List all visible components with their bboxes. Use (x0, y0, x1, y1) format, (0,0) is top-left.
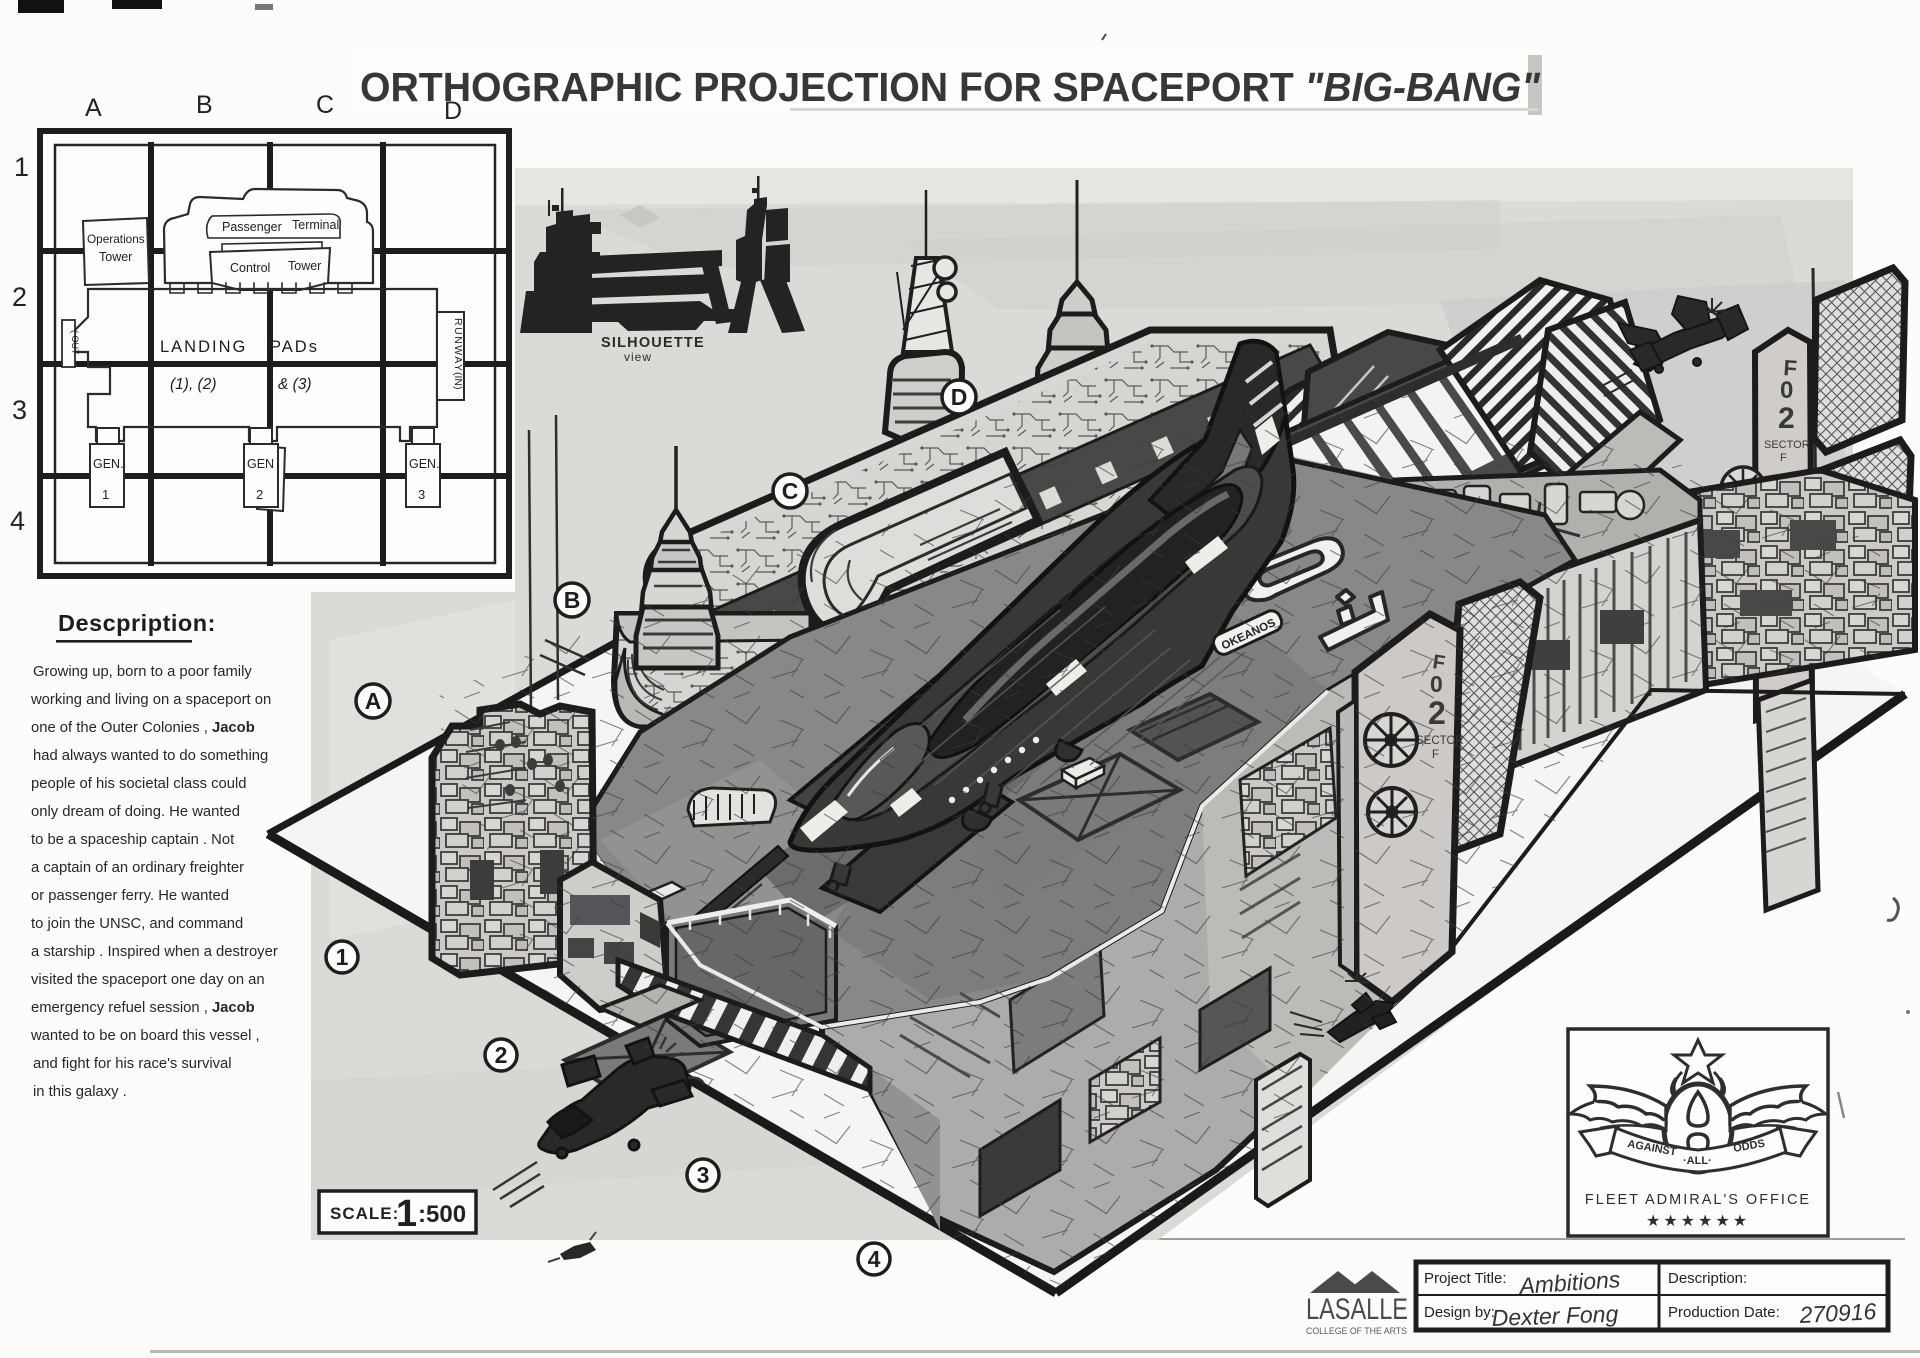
svg-text:SCALE:: SCALE: (330, 1204, 399, 1223)
svg-text:Growing up, born to a poor fam: Growing up, born to a poor family (33, 664, 252, 680)
svg-text:C: C (782, 478, 799, 504)
svg-text:D: D (444, 97, 462, 125)
svg-text:SILHOUETTE: SILHOUETTE (601, 335, 705, 351)
svg-text:LASALLE: LASALLE (1306, 1293, 1408, 1326)
svg-text:one of the Outer Colonies , Ja: one of the Outer Colonies , Jacob (31, 720, 255, 736)
svg-text:2: 2 (256, 487, 263, 502)
svg-text:Tower: Tower (288, 259, 321, 273)
svg-text:A: A (365, 688, 382, 714)
svg-text:A: A (85, 94, 102, 122)
svg-text:4: 4 (868, 1246, 881, 1272)
svg-text:3: 3 (697, 1162, 710, 1188)
svg-text:3: 3 (418, 487, 425, 502)
svg-text:(1), (2): (1), (2) (170, 376, 217, 393)
svg-text:Production Date:: Production Date: (1668, 1304, 1780, 1321)
svg-text:GEN: GEN (247, 457, 274, 471)
svg-text:Terminal: Terminal (292, 218, 339, 232)
svg-text:B: B (196, 91, 213, 119)
svg-text:working and living on a spacep: working and living on a spaceport on (30, 692, 271, 708)
svg-text:a captain of an ordinary freig: a captain of an ordinary freighter (31, 860, 244, 876)
svg-text:2: 2 (1778, 402, 1795, 435)
svg-text:in this galaxy .: in this galaxy . (33, 1084, 127, 1100)
svg-text:★★★★★★: ★★★★★★ (1646, 1213, 1750, 1230)
svg-text:270916: 270916 (1798, 1298, 1877, 1328)
svg-text::500: :500 (418, 1201, 466, 1228)
svg-text:Tower: Tower (99, 250, 132, 264)
svg-text:Dexter Fong: Dexter Fong (1491, 1301, 1619, 1331)
svg-text:·ALL·: ·ALL· (1683, 1155, 1712, 1167)
svg-text:FLEET ADMIRAL'S OFFICE: FLEET ADMIRAL'S OFFICE (1585, 1192, 1811, 1208)
svg-text:3: 3 (12, 395, 27, 425)
svg-text:to join the UNSC, and command: to join the UNSC, and command (31, 916, 243, 932)
svg-text:GEN.: GEN. (93, 457, 124, 471)
svg-text:Design by:: Design by: (1424, 1304, 1495, 1321)
svg-text:& (3): & (3) (278, 376, 312, 393)
svg-text:1: 1 (102, 487, 109, 502)
svg-text:( OUT: ( OUT (70, 330, 80, 355)
svg-text:D: D (951, 384, 968, 410)
svg-text:emergency refuel session , Jac: emergency refuel session , Jacob (31, 1000, 255, 1016)
svg-text:2: 2 (495, 1042, 508, 1068)
svg-text:PADs: PADs (270, 338, 319, 356)
svg-text:ORTHOGRAPHIC PROJECTION FOR SP: ORTHOGRAPHIC PROJECTION FOR SPACEPORT "B… (360, 66, 1540, 111)
svg-text:C: C (316, 91, 334, 119)
svg-text:Passenger: Passenger (222, 220, 282, 234)
svg-text:1: 1 (336, 944, 349, 970)
svg-text:had always wanted to do someth: had always wanted to do something (33, 748, 268, 764)
svg-text:2: 2 (12, 282, 27, 312)
svg-text:GEN.: GEN. (409, 457, 440, 471)
svg-text:(IN): (IN) (452, 372, 464, 390)
svg-text:1: 1 (396, 1193, 417, 1235)
svg-text:SECTOR: SECTOR (1764, 439, 1810, 451)
svg-text:Descpription:: Descpription: (58, 610, 216, 636)
svg-text:Operations: Operations (87, 232, 145, 246)
svg-text:view: view (624, 350, 652, 364)
svg-text:COLLEGE OF THE ARTS: COLLEGE OF THE ARTS (1306, 1326, 1407, 1337)
svg-text:Control: Control (230, 261, 270, 275)
svg-text:0: 0 (1780, 377, 1793, 404)
svg-text:or passenger ferry. He wanted: or passenger ferry. He wanted (31, 888, 229, 904)
svg-text:1: 1 (14, 152, 29, 182)
svg-text:to be a spaceship captain . N: to be a spaceship captain . Not (31, 832, 234, 848)
svg-text:F: F (1780, 452, 1787, 464)
svg-text:Description:: Description: (1668, 1270, 1747, 1287)
svg-text:only dream of doing. He wante: only dream of doing. He wanted (31, 804, 240, 820)
svg-text:visited the spaceport one day: visited the spaceport one day on an (31, 972, 265, 988)
svg-text:wanted to be on board this ves: wanted to be on board this vessel , (30, 1028, 260, 1044)
svg-text:Project Title:: Project Title: (1424, 1270, 1507, 1287)
svg-text:a starship . Inspired when a: a starship . Inspired when a destroyer (31, 944, 278, 960)
svg-text:B: B (564, 587, 581, 613)
svg-text:people of his societal class c: people of his societal class could (31, 776, 247, 792)
svg-text:LANDING: LANDING (160, 338, 247, 356)
svg-text:RUNWAY: RUNWAY (452, 318, 464, 373)
svg-text:4: 4 (10, 506, 25, 536)
svg-text:and fight for his race's survi: and fight for his race's survival (33, 1056, 232, 1072)
